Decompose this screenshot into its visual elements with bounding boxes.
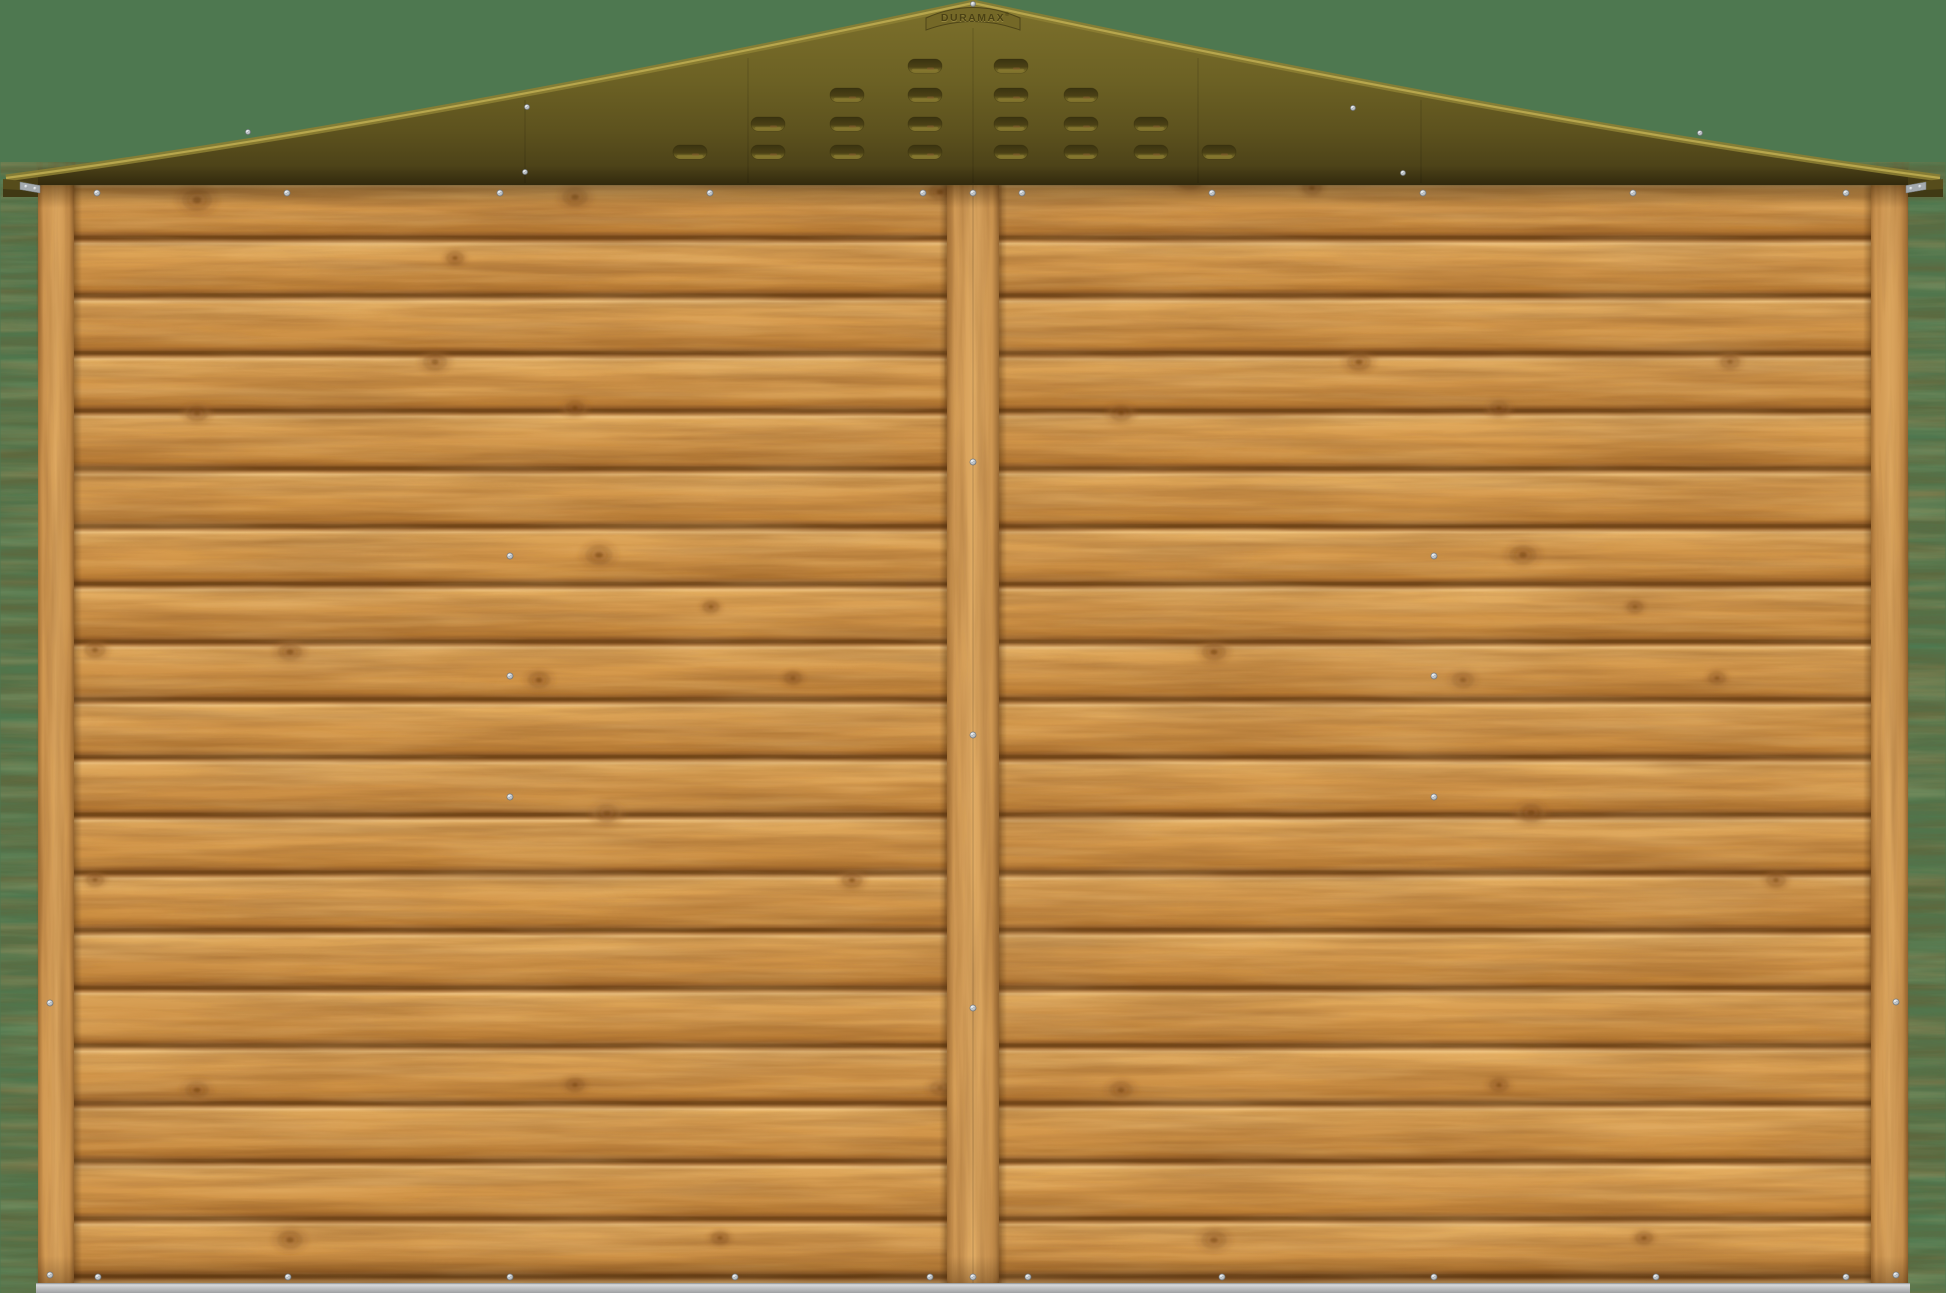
- screw: [507, 553, 513, 559]
- screw: [1431, 553, 1437, 559]
- eave-shadow-on-wall: [38, 186, 1908, 208]
- screw: [707, 190, 713, 196]
- screw: [970, 1274, 976, 1280]
- screw: [1025, 1274, 1031, 1280]
- center-post-shadow-left: [939, 184, 947, 1283]
- screw: [1431, 794, 1437, 800]
- roof-vent: [908, 117, 942, 131]
- duramax-logo-text: DURAMAX: [941, 12, 1005, 24]
- screw: [1893, 1272, 1899, 1278]
- roof-vent: [1202, 145, 1236, 159]
- roof-vent: [830, 88, 864, 102]
- screw: [497, 190, 503, 196]
- roof-vent: [1134, 145, 1168, 159]
- screw: [522, 169, 527, 174]
- screw: [47, 1272, 53, 1278]
- metal-base-rail: [36, 1283, 1910, 1293]
- right-post: [1871, 184, 1908, 1283]
- roof-vent: [994, 145, 1028, 159]
- screw: [94, 190, 100, 196]
- left-post: [38, 184, 74, 1283]
- screw: [47, 1000, 53, 1006]
- registered-trademark-symbol: ®: [1005, 11, 1009, 18]
- screw: [920, 190, 926, 196]
- screw: [507, 794, 513, 800]
- left-post-shadow: [74, 184, 82, 1283]
- screw: [285, 1274, 291, 1280]
- screw: [1843, 1274, 1849, 1280]
- roof-vent: [830, 145, 864, 159]
- screw: [732, 1274, 738, 1280]
- roof-vent: [908, 145, 942, 159]
- screw: [1019, 190, 1025, 196]
- screw: [95, 1274, 101, 1280]
- screw: [927, 1274, 933, 1280]
- screw: [970, 190, 976, 196]
- screw: [1893, 999, 1899, 1005]
- roof-vent: [994, 117, 1028, 131]
- screw: [1431, 1274, 1437, 1280]
- right-post-shadow: [1863, 184, 1871, 1283]
- roof-vent: [1064, 145, 1098, 159]
- roof-vent: [1134, 117, 1168, 131]
- screw: [284, 190, 290, 196]
- screw: [1219, 1274, 1225, 1280]
- screw: [524, 104, 529, 109]
- roof-vent: [830, 117, 864, 131]
- screw: [507, 1274, 513, 1280]
- center-post-shadow-right: [999, 184, 1007, 1283]
- roof-vent: [908, 88, 942, 102]
- roof-vent: [1064, 88, 1098, 102]
- screw: [1653, 1274, 1659, 1280]
- shed-illustration: DURAMAX DURAMAX ®: [0, 0, 1946, 1293]
- roof-vent: [673, 145, 707, 159]
- screw: [1209, 190, 1215, 196]
- roof-vent: [994, 88, 1028, 102]
- roof-vent: [994, 59, 1028, 73]
- screw: [970, 732, 976, 738]
- screw: [1630, 190, 1636, 196]
- screw: [1843, 190, 1849, 196]
- roof-vent: [908, 59, 942, 73]
- screw: [1697, 130, 1702, 135]
- screw: [1350, 105, 1355, 110]
- roof-vent: [751, 145, 785, 159]
- screw: [1431, 673, 1437, 679]
- apex-screw: [971, 2, 975, 6]
- screw: [970, 1005, 976, 1011]
- roof-vent: [1064, 117, 1098, 131]
- screw: [1420, 190, 1426, 196]
- screw: [1400, 170, 1405, 175]
- roof-vent: [751, 117, 785, 131]
- screw: [970, 459, 976, 465]
- screw: [507, 673, 513, 679]
- product-render-stage: DURAMAX DURAMAX ®: [0, 0, 1946, 1293]
- shed-wall: [36, 163, 1910, 1293]
- screw: [245, 129, 250, 134]
